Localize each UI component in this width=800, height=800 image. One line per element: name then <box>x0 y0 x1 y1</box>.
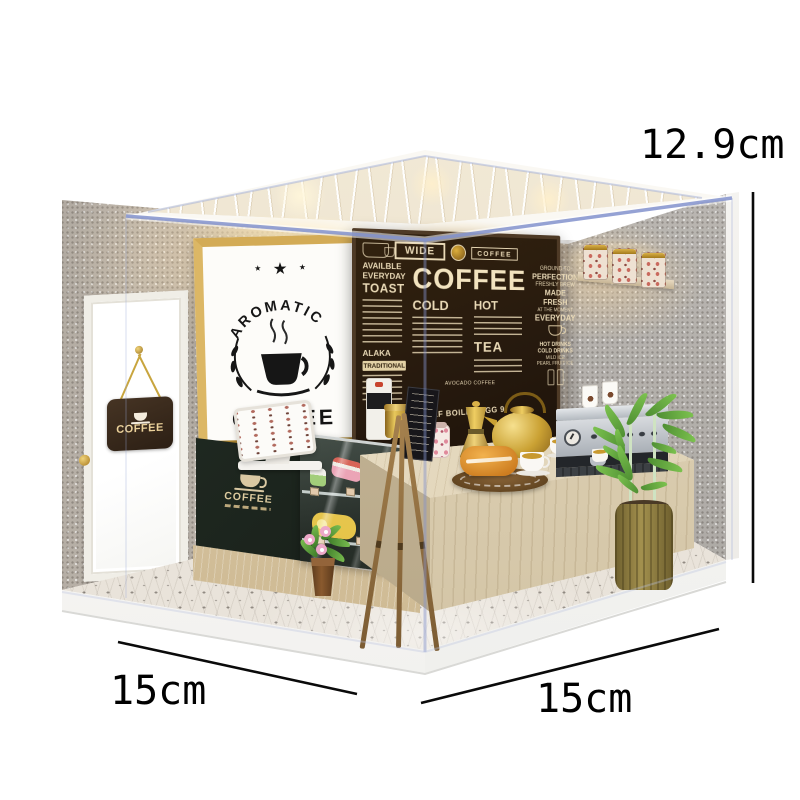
menu-traditional-badge: TRADITIONAL <box>363 361 406 371</box>
easel-leg <box>401 413 439 651</box>
menu-cold-heading: COLD <box>412 297 466 313</box>
leaf-icon <box>660 423 697 443</box>
menu-tea-heading: TEA <box>474 339 526 355</box>
pos-register <box>232 404 328 466</box>
coffee-tin <box>612 248 637 284</box>
menu-cold-section: COLD <box>412 297 466 379</box>
shop-door: COFFEE <box>84 290 188 581</box>
register-touchscreen <box>233 399 317 462</box>
moka-lid-knob <box>472 401 480 407</box>
coffee-cup-and-saucer <box>518 452 548 476</box>
plant-pot <box>615 504 673 590</box>
saucer-icon <box>257 390 309 396</box>
coffee-cup-icon <box>239 474 260 488</box>
flower-icon <box>320 526 331 537</box>
brand-wide: WIDE <box>395 241 445 260</box>
aromatic-arc-text: AROMATIC <box>226 297 327 342</box>
menu-right-line: EVERYDAY <box>532 313 578 324</box>
coffee-tin <box>583 244 608 280</box>
svg-text:AROMATIC: AROMATIC <box>226 297 327 342</box>
cup-handle-icon <box>302 358 307 375</box>
bottle-sketch-icons <box>532 369 578 385</box>
steam-icon <box>271 319 275 342</box>
menu-hot-section: HOT TEA <box>474 298 526 379</box>
width-dimension-label: 15cm <box>110 668 206 714</box>
brand-badge-icon <box>450 244 465 261</box>
acrylic-back-edge <box>148 156 702 212</box>
menu-left-line: EVERYDAY <box>363 271 406 282</box>
easel-leg <box>360 415 402 649</box>
menu-price-list-lines <box>474 316 522 335</box>
potted-plant-large <box>585 404 697 594</box>
menu-left-line: TOAST <box>363 281 406 296</box>
menu-price-list-lines <box>474 359 522 375</box>
star-icon: ★ <box>272 260 287 278</box>
menu-right-column: GROUND TO PERFECTION FRESHLY BREW MADE F… <box>532 266 578 402</box>
wooden-easel <box>352 412 452 657</box>
brand-coffee: COFFEE <box>471 246 518 260</box>
height-dimension-label: 12.9cm <box>640 122 785 168</box>
menu-price-list-lines <box>363 299 403 345</box>
menu-drinks-line: PEARL FRUIT ICE <box>532 361 578 367</box>
coffee-cup-icon <box>261 353 303 385</box>
flower-icon <box>304 534 315 545</box>
menu-hot-heading: HOT <box>474 298 526 313</box>
menu-avocado-line: AVOCADO COFFEE <box>412 380 526 387</box>
bread-pastry <box>460 446 518 476</box>
pressure-gauge-icon <box>564 429 581 447</box>
hanging-coffee-sign: COFFEE <box>107 396 173 451</box>
coffee-cups-sketch-icon <box>363 242 390 258</box>
leaf-icon <box>328 538 350 547</box>
menu-alaka: ALAKA <box>363 348 406 358</box>
star-icon: ★ <box>299 263 306 272</box>
coffee-cup-icon <box>134 412 147 421</box>
menu-center-column: COFFEE COLD HOT TEA AVOCADO COFFEE <box>412 263 526 405</box>
flower-pot <box>308 558 338 596</box>
menu-cold-hot-row: COLD HOT TEA <box>412 297 526 379</box>
paper-cup <box>602 381 618 405</box>
kettle-lid <box>510 406 534 414</box>
product-photo-stage: COFFEE ★ ★ ★ AROMATIC COFFEE <box>0 0 800 800</box>
steam-icon <box>282 321 286 344</box>
door-knob <box>79 454 90 466</box>
depth-dimension-label: 15cm <box>536 676 632 722</box>
flower-icon <box>316 544 327 555</box>
coffee-tin <box>641 252 666 288</box>
menu-price-list-lines <box>412 317 462 358</box>
menu-title: COFFEE <box>412 265 526 296</box>
coffee-cup-icon <box>549 325 562 335</box>
potted-flower-small <box>296 520 348 596</box>
moka-waist <box>468 429 484 434</box>
menu-right-line: MADE FRESH <box>532 289 578 308</box>
counter-coffee-logo: COFFEE <box>212 463 286 521</box>
easel-leg <box>396 420 405 648</box>
star-icon: ★ <box>254 264 261 273</box>
